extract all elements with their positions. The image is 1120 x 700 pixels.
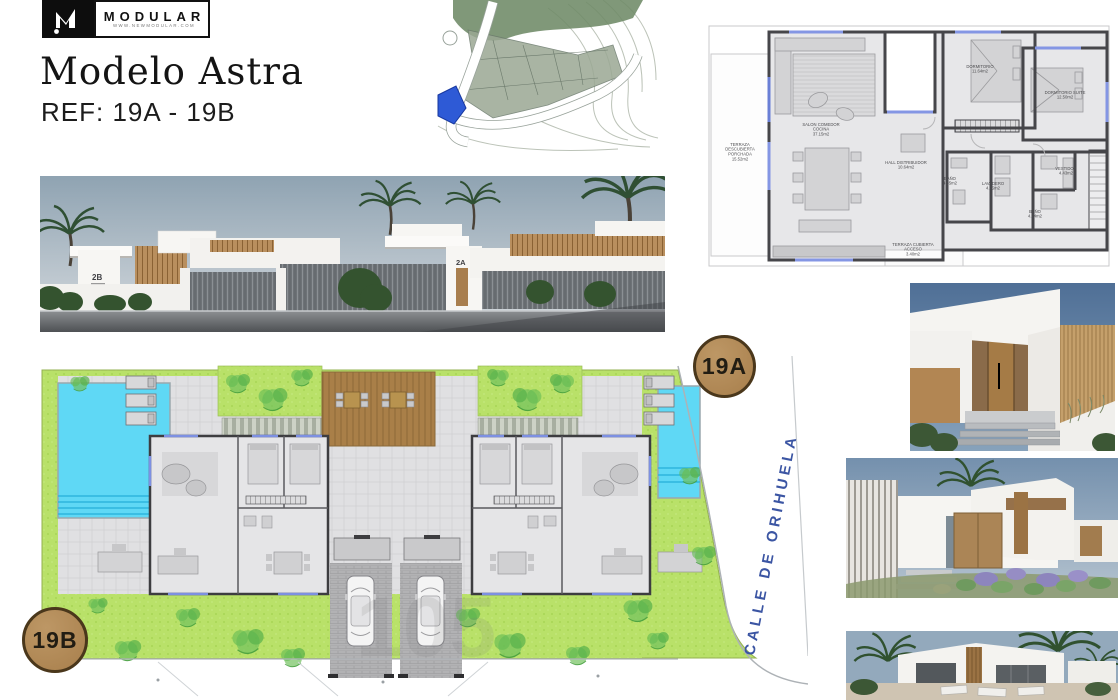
room-label-salon: SALON COMEDOR COCINA37.15m2 — [798, 123, 844, 137]
shrub — [850, 679, 878, 695]
entry-door-right — [424, 535, 440, 539]
hedge-left — [222, 418, 322, 436]
loungers-right — [644, 376, 674, 425]
site-plan-drawing: 105 CALLE DE ORIHUELA — [38, 356, 808, 700]
villa-render — [846, 458, 1118, 598]
porch-right — [404, 538, 460, 560]
window-left — [916, 663, 956, 683]
side-block — [1068, 661, 1116, 683]
villa-render-drawing — [846, 458, 1118, 598]
model-reference: REF: 19A - 19B — [41, 97, 236, 128]
street-name-label: CALLE DE ORIHUELA — [741, 432, 801, 657]
room-label-terraza-cubierta: TERRAZA CUBIERTA ACCESO3.40m2 — [890, 243, 936, 257]
stairs — [1089, 150, 1107, 230]
shrub — [1085, 682, 1111, 696]
entrance-render-drawing — [910, 283, 1115, 451]
location-map-drawing — [398, 0, 660, 152]
modular-logo-mark-icon — [42, 0, 94, 38]
loungers-left — [126, 376, 156, 425]
entrance-render — [910, 283, 1115, 451]
garden-patch-right — [478, 366, 582, 416]
room-label-bano2: BAÑO4.74m2 — [1012, 210, 1058, 220]
house-number-right: 2A — [456, 258, 466, 267]
side-wood-door — [1080, 526, 1102, 556]
side-wood-panel — [910, 368, 960, 423]
brand-logo: MODULAR WWW.NEWMODULAR.COM — [42, 0, 210, 38]
brand-name: MODULAR — [104, 9, 205, 24]
floor-plan: TERRAZA DESCUBIERTA PORCHADA15.52m2 SALO… — [703, 22, 1115, 272]
steps — [955, 423, 1065, 445]
site-plan: 105 CALLE DE ORIHUELA — [38, 356, 808, 700]
hedge-right — [478, 418, 578, 436]
brand-website: WWW.NEWMODULAR.COM — [113, 24, 195, 28]
villa-render-bottom — [846, 631, 1118, 700]
wood-fin — [1014, 492, 1028, 554]
room-label-vestidor: VESTIDOR4.43m2 — [1043, 167, 1089, 177]
window-right — [996, 665, 1046, 683]
room-label-suite: DORMITORIO SUITE12.50m2 — [1042, 91, 1088, 101]
garden-patch-left — [218, 366, 322, 416]
brochure-page: MODULAR WWW.NEWMODULAR.COM Modelo Astra … — [0, 0, 1120, 700]
door-handle — [998, 363, 1000, 389]
house-number-left: 2B — [92, 273, 102, 282]
location-map — [398, 0, 660, 152]
page-title: Modelo Astra — [40, 50, 304, 93]
street-view-drawing: 2B 2A — [40, 176, 665, 332]
room-label-terraza-descubierta: TERRAZA DESCUBIERTA PORCHADA15.52m2 — [717, 143, 763, 162]
room-label-dormitorio: DORMITORIO11.64m2 — [957, 65, 1003, 75]
glass-strip — [946, 516, 954, 568]
unit-badge-19a: 19A — [693, 335, 756, 398]
porch-left — [334, 538, 390, 560]
wardrobe — [955, 120, 1019, 132]
unit-badge-19b: 19B — [22, 607, 88, 673]
entry-door-left — [354, 535, 370, 539]
plot-number-watermark: 105 — [356, 580, 496, 674]
room-label-lavadero: LAVADERO4.25m2 — [970, 182, 1016, 192]
room-label-bano1: BAÑO4.35m2 — [927, 177, 973, 187]
wood-deck — [322, 372, 435, 446]
room-label-hall: HALL DISTRIBUIDOR10.64m2 — [883, 161, 929, 171]
front-door — [988, 341, 1014, 423]
floor-plan-drawing — [703, 22, 1115, 272]
wood-slat-inset — [966, 647, 982, 683]
house-sign-line — [91, 283, 105, 284]
brand-logo-box: MODULAR WWW.NEWMODULAR.COM — [94, 0, 210, 38]
landing — [965, 411, 1055, 423]
patio-void — [885, 32, 935, 112]
villa-render-bottom-drawing — [846, 631, 1118, 700]
street-view-render: 2B 2A — [40, 176, 665, 332]
